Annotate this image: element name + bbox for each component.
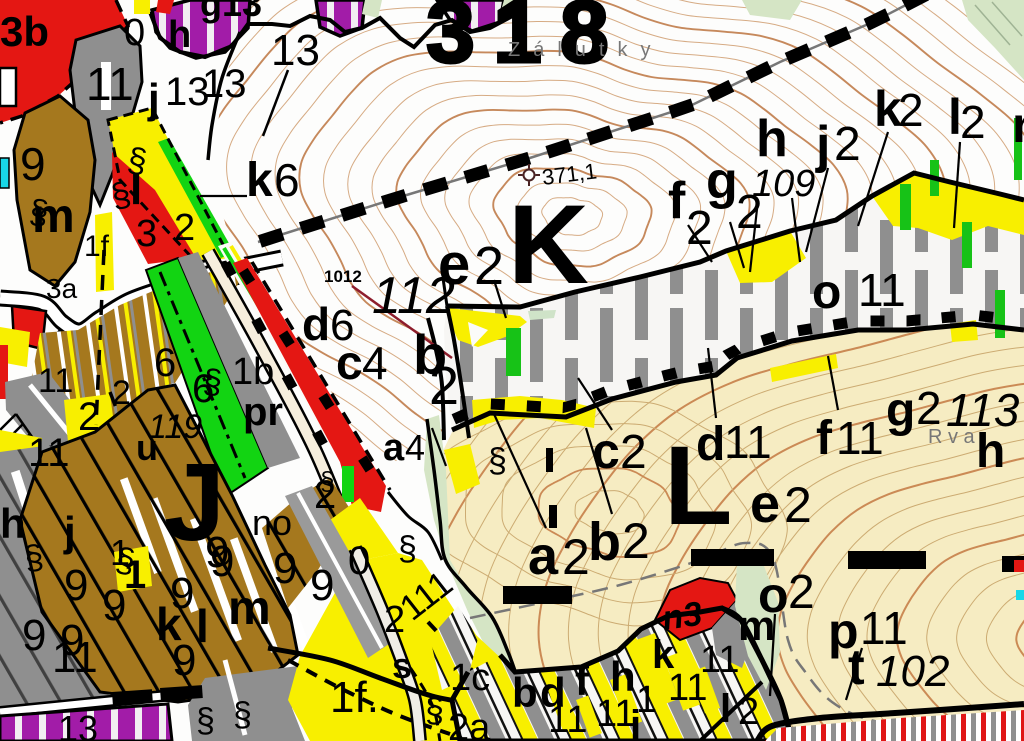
svg-text:9: 9	[22, 611, 46, 660]
svg-text:4: 4	[405, 427, 425, 468]
svg-text:2: 2	[429, 356, 459, 416]
svg-text:11: 11	[836, 412, 884, 464]
svg-text:0: 0	[124, 12, 145, 54]
svg-text:t: t	[848, 639, 865, 695]
svg-text:j: j	[147, 75, 160, 122]
svg-text:h: h	[756, 110, 788, 168]
svg-text:0: 0	[348, 539, 370, 583]
svg-text:102: 102	[876, 647, 949, 696]
svg-text:g13: g13	[200, 0, 262, 24]
svg-text:g: g	[706, 152, 738, 210]
svg-text:n3: n3	[660, 595, 705, 638]
svg-text:1f.: 1f.	[330, 673, 379, 722]
svg-text:2: 2	[112, 374, 131, 412]
svg-text:119: 119	[148, 408, 202, 446]
svg-text:Zálutky: Zálutky	[508, 39, 663, 61]
svg-text:§: §	[320, 466, 334, 496]
svg-text:9: 9	[310, 561, 334, 610]
svg-text:no: no	[252, 502, 292, 543]
svg-text:k: k	[156, 598, 182, 650]
svg-text:k: k	[246, 154, 273, 207]
svg-text:2: 2	[788, 566, 815, 619]
svg-text:2: 2	[898, 84, 924, 136]
svg-text:c: c	[336, 337, 363, 390]
svg-text:o: o	[812, 266, 841, 319]
svg-text:K: K	[508, 182, 589, 307]
svg-text:11: 11	[858, 264, 906, 316]
svg-text:112: 112	[372, 267, 455, 325]
svg-text:j: j	[815, 116, 830, 174]
svg-text:11: 11	[38, 362, 73, 400]
svg-text:b: b	[512, 669, 538, 716]
svg-text:9: 9	[273, 544, 297, 593]
svg-text:9: 9	[64, 561, 88, 610]
svg-text:n: n	[1012, 97, 1024, 153]
svg-text:2: 2	[622, 513, 650, 569]
svg-text:b: b	[588, 512, 621, 572]
svg-text:1f: 1f	[84, 230, 110, 263]
svg-text:l: l	[196, 600, 209, 652]
svg-text:2: 2	[784, 477, 812, 533]
svg-text:11: 11	[86, 58, 134, 110]
svg-text:4: 4	[362, 337, 388, 389]
svg-text:d: d	[696, 418, 725, 471]
svg-text:pr: pr	[243, 390, 283, 434]
svg-text:§: §	[233, 696, 252, 734]
svg-text:2: 2	[562, 529, 590, 585]
svg-text:1c: 1c	[450, 657, 490, 699]
svg-text:e: e	[750, 474, 780, 534]
svg-text:11: 11	[700, 639, 739, 681]
svg-text:2: 2	[834, 118, 861, 171]
svg-text:§: §	[196, 702, 215, 740]
svg-text:R v a: R v a	[928, 426, 976, 448]
svg-text:13: 13	[58, 708, 98, 741]
svg-text:h: h	[976, 425, 1005, 478]
svg-text:11: 11	[724, 416, 772, 468]
svg-text:j: j	[629, 703, 641, 741]
svg-text:2: 2	[960, 96, 986, 148]
svg-text:§: §	[398, 530, 417, 568]
svg-text:2a: 2a	[448, 707, 491, 741]
svg-text:h: h	[168, 14, 191, 56]
svg-text:2: 2	[174, 207, 195, 249]
svg-text:2: 2	[620, 426, 647, 479]
svg-text:g: g	[886, 384, 915, 437]
svg-text:2: 2	[474, 236, 504, 296]
svg-text:3: 3	[136, 213, 157, 255]
svg-text:109: 109	[752, 163, 815, 205]
svg-text:9: 9	[20, 138, 46, 190]
svg-text:l: l	[720, 687, 731, 731]
svg-text:1b: 1b	[232, 351, 274, 393]
svg-text:m: m	[738, 602, 775, 649]
svg-text:3a: 3a	[46, 273, 78, 304]
svg-text:11: 11	[28, 431, 70, 475]
svg-text:§: §	[425, 692, 444, 730]
svg-text:f: f	[575, 657, 590, 704]
svg-text:c: c	[592, 423, 620, 479]
svg-text:m: m	[228, 582, 271, 635]
svg-text:a: a	[383, 427, 405, 469]
svg-text:1012: 1012	[324, 267, 362, 286]
svg-text:§: §	[201, 362, 224, 402]
svg-text:a: a	[528, 526, 559, 586]
svg-text:§: §	[488, 442, 507, 480]
svg-text:6: 6	[274, 154, 300, 206]
svg-text:2: 2	[738, 691, 759, 733]
svg-text:9: 9	[205, 528, 229, 577]
svg-text:11: 11	[548, 699, 587, 741]
svg-text:11: 11	[52, 633, 98, 682]
svg-text:s: s	[392, 645, 412, 686]
svg-text:2: 2	[78, 395, 100, 439]
svg-text:3b: 3b	[0, 8, 49, 55]
svg-text:d: d	[302, 298, 330, 350]
svg-text:13: 13	[202, 62, 247, 106]
svg-text:f: f	[816, 412, 833, 465]
svg-text:j: j	[63, 508, 76, 555]
svg-text:9: 9	[102, 581, 126, 630]
svg-text:13: 13	[271, 26, 320, 75]
svg-text:f: f	[668, 172, 686, 230]
svg-text:6: 6	[154, 341, 176, 385]
